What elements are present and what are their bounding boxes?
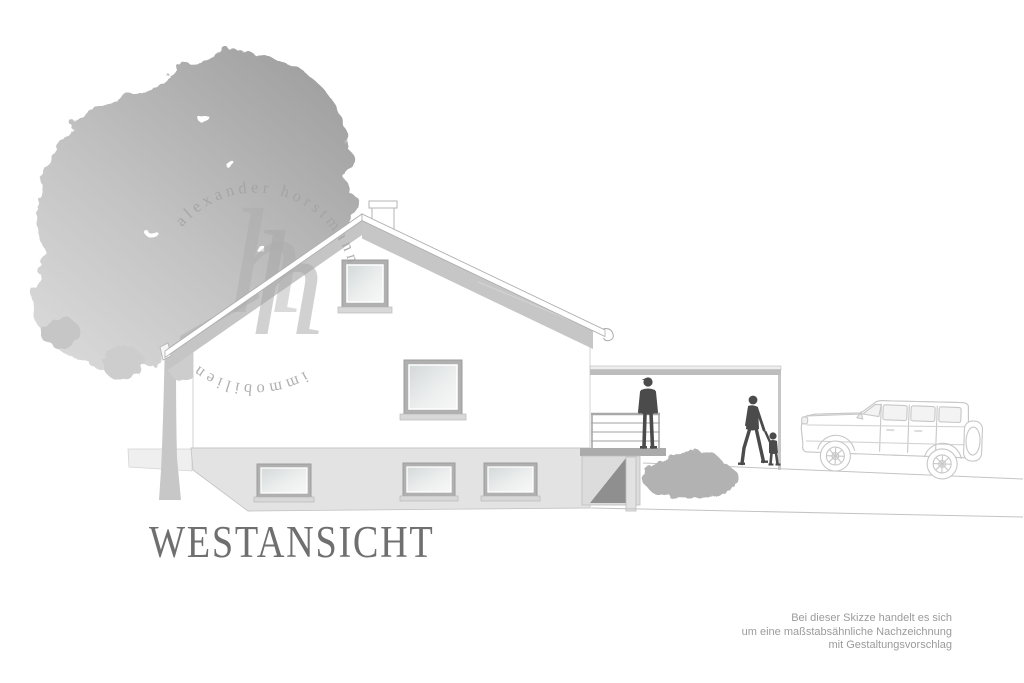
drawing-title: WESTANSICHT <box>149 516 435 568</box>
ground-strip-left <box>128 449 192 471</box>
person-walking-silhouette <box>738 396 768 465</box>
architectural-sketch-page: h h alexander horstmann immobilien WESTA… <box>0 0 1024 683</box>
west-elevation-drawing: h h alexander horstmann immobilien <box>0 0 1024 683</box>
basement-window-1 <box>254 464 314 502</box>
disclaimer-note: Bei dieser Skizze handelt es sich um ein… <box>742 612 952 653</box>
carport-post <box>778 375 781 470</box>
rear-wheel <box>927 448 958 479</box>
suv-illustration <box>800 397 984 481</box>
terrace-slab <box>580 448 666 456</box>
front-wheel <box>820 440 851 471</box>
basement-window-2 <box>400 463 458 501</box>
basement-window-3 <box>481 463 540 501</box>
disclaimer-line-3: mit Gestaltungsvorschlag <box>742 639 952 653</box>
bush <box>642 450 738 498</box>
garage-pillar <box>626 457 636 511</box>
disclaimer-line-2: um eine maßstabsähnliche Nachzeichnung <box>742 626 952 640</box>
person-standing-silhouette <box>640 377 658 448</box>
spare-wheel <box>963 421 982 462</box>
window-sill <box>338 307 392 313</box>
ground-line-lower <box>591 508 1023 517</box>
disclaimer-line-1: Bei dieser Skizze handelt es sich <box>742 612 952 626</box>
window-sill <box>400 414 466 420</box>
main-window <box>400 360 466 420</box>
carport-beam <box>590 366 781 375</box>
